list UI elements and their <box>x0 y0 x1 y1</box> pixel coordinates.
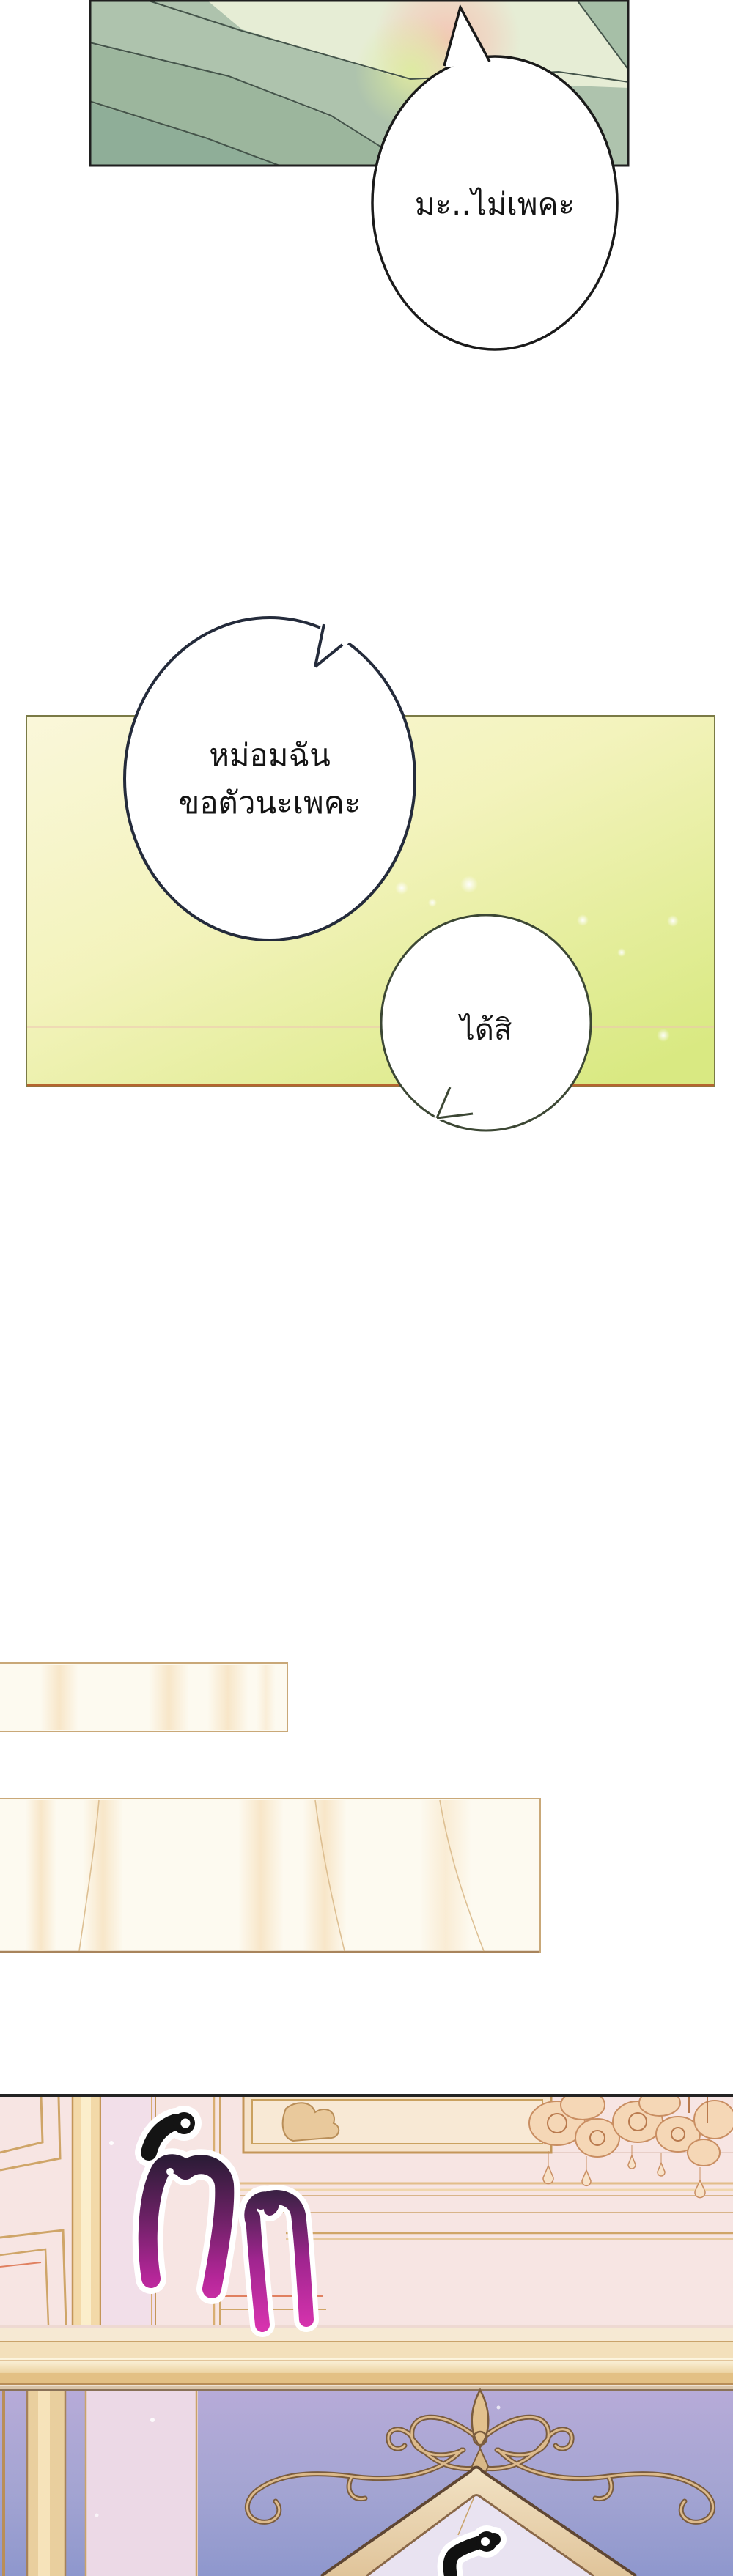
comic-page: มะ..ไม่เพคะ <box>0 0 733 2576</box>
sparkle-dot <box>95 2514 99 2517</box>
speech-bubble-1-text: มะ..ไม่เพคะ <box>399 180 590 228</box>
panel-yellow-green <box>0 608 733 1143</box>
panel-palace-top-border <box>0 2094 733 2097</box>
speech-bubble-3-text: ได้สิ <box>427 1007 545 1053</box>
cream-strip-panels <box>0 1659 733 1956</box>
speech-bubble-2-text: หม่อมฉัน ขอตัวนะเพคะ <box>167 731 372 826</box>
wainscot-band <box>0 2325 733 2390</box>
sparkle-dot <box>150 2418 155 2422</box>
cream-strip-1 <box>0 1663 287 1731</box>
panel-green-closeup <box>0 0 733 363</box>
pilasters-below-band <box>4 2391 198 2576</box>
sparkle-dot <box>497 2406 501 2410</box>
cream-strip-2 <box>0 1799 540 1953</box>
panel-palace-interior <box>0 2094 733 2576</box>
speech-bubble-2-line1: หม่อมฉัน <box>167 731 372 779</box>
speech-bubble-2-line2: ขอตัวนะเพคะ <box>167 779 372 826</box>
sparkle-dot <box>109 2141 114 2145</box>
picture-frame <box>243 2094 551 2153</box>
